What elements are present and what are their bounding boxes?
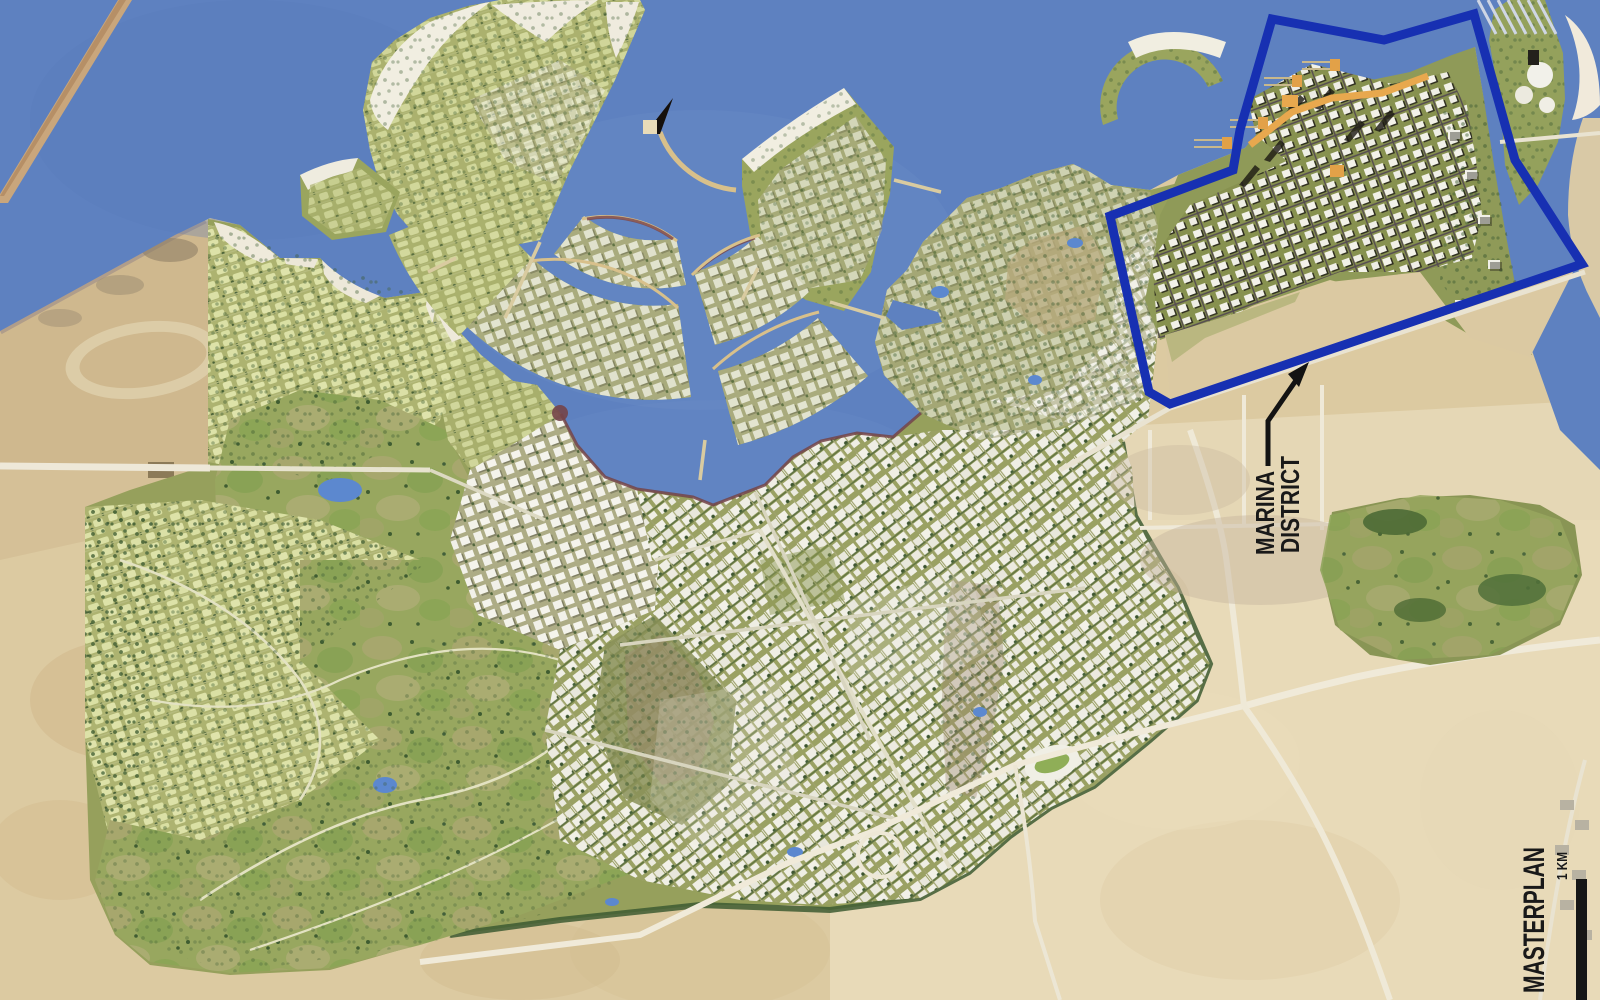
svg-text:1 KM: 1 KM <box>1554 852 1571 880</box>
svg-text:DISTRICT: DISTRICT <box>1275 456 1305 553</box>
svg-text:MASTERPLAN: MASTERPLAN <box>1518 847 1551 993</box>
